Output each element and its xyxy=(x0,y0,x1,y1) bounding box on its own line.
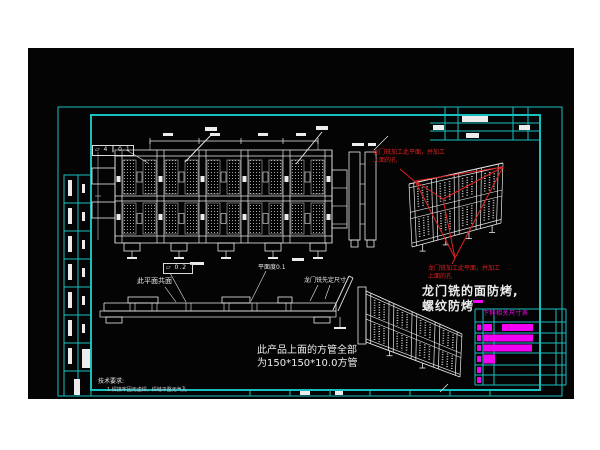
square-tube-note: 此产品上面的方管全部为150*150*10.0方管 xyxy=(257,345,357,370)
bottom-title-strip xyxy=(230,384,540,396)
tech-requirements-item: 1.焊接牢固无虚焊，焊缝平整无气孔 xyxy=(107,387,187,393)
red-machining-note-bottom: 龙门铣加工此平面，并加工上面的孔 xyxy=(428,265,500,280)
isometric-view-top xyxy=(409,163,503,251)
gantry-dimension-label: 龙门铣先定尺寸 xyxy=(304,277,346,285)
red-note-bottom-line2: 上面的孔 xyxy=(428,273,452,280)
red-note-top-line2: 上面的孔 xyxy=(373,157,397,164)
tech-requirements-title: 技术要求: xyxy=(98,378,124,386)
tube-note-line1: 此产品上面的方管全部 xyxy=(257,345,357,356)
red-machining-note-top: 龙门铣加工此平面，并加工上面的孔 xyxy=(373,149,445,164)
red-note-bottom-line1: 龙门铣加工此平面，并加工 xyxy=(428,265,500,272)
bom-table-header: 下料相关尺寸表 xyxy=(483,310,529,318)
red-note-top-line1: 龙门铣加工此平面，并加工 xyxy=(373,149,445,156)
flatness-symbol-box-top: ▱ 4 ‖ 0.1 xyxy=(92,145,134,156)
tube-note-line2: 为150*150*10.0方管 xyxy=(257,358,357,369)
flatness-symbol-box-side: ▱ 0.2 xyxy=(163,263,193,274)
coplanar-label: 此平面共面 xyxy=(137,277,172,286)
revision-table xyxy=(430,107,540,140)
page: ▱ 4 ‖ 0.1 ▱ 0.2 此平面共面 平面度0.1 龙门铣先定尺寸 龙门铣… xyxy=(0,0,600,450)
bake-note-line2: 螺纹防烤 xyxy=(422,299,474,313)
bake-note-line1: 龙门铣的面防烤, xyxy=(422,284,519,298)
flatness-value-label: 平面度0.1 xyxy=(258,264,286,272)
left-title-strip xyxy=(64,175,91,396)
